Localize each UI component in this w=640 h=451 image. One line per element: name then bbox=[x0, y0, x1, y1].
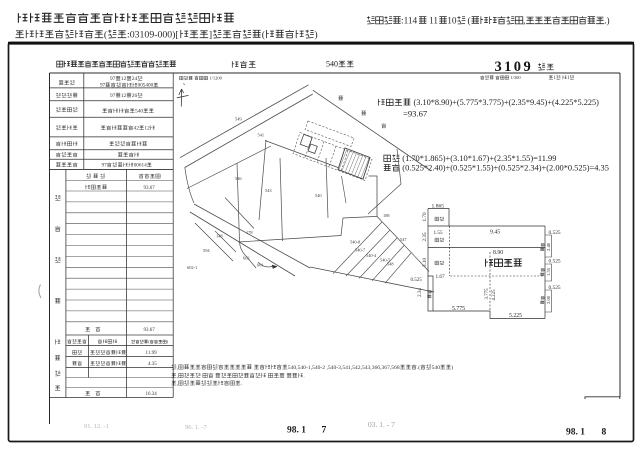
svg-text:03. 1. - 7: 03. 1. - 7 bbox=[368, 420, 395, 429]
svg-text:543: 543 bbox=[265, 188, 272, 193]
svg-text:,: , bbox=[177, 381, 179, 387]
svg-text:178: 178 bbox=[246, 230, 253, 235]
svg-text:546: 546 bbox=[235, 176, 242, 181]
svg-text:(: ( bbox=[465, 15, 470, 26]
svg-text:4.225: 4.225 bbox=[492, 289, 497, 301]
svg-text:1: 1 bbox=[567, 76, 570, 81]
svg-text:12: 12 bbox=[121, 93, 127, 99]
svg-text:1.67: 1.67 bbox=[436, 274, 445, 280]
svg-text:540-4: 540-4 bbox=[366, 253, 377, 258]
svg-text:4.35: 4.35 bbox=[148, 362, 157, 367]
svg-text:96. 1. -7: 96. 1. -7 bbox=[185, 424, 207, 431]
svg-text:93.67: 93.67 bbox=[144, 328, 156, 333]
svg-text:98. 1: 98. 1 bbox=[287, 426, 306, 436]
svg-text:5.775: 5.775 bbox=[452, 306, 465, 312]
svg-text:602-1: 602-1 bbox=[187, 265, 197, 270]
svg-text:(0.525*2.40)+(0.525*1.55)+(0.5: (0.525*2.40)+(0.525*1.55)+(0.525*2.34)+(… bbox=[400, 164, 609, 173]
svg-text:005400: 005400 bbox=[138, 83, 154, 89]
svg-text:540: 540 bbox=[315, 193, 322, 198]
svg-text:188: 188 bbox=[383, 213, 390, 218]
svg-text:2.00: 2.00 bbox=[546, 295, 551, 304]
svg-text:0.525: 0.525 bbox=[549, 259, 561, 265]
svg-text:97: 97 bbox=[110, 76, 116, 82]
svg-text:24: 24 bbox=[132, 76, 138, 82]
svg-text:540,540-1,540-2 ,540-3,541,542: 540,540-1,540-2 ,540-3,541,542,543,366,3… bbox=[288, 365, 400, 371]
svg-text:547: 547 bbox=[400, 237, 407, 242]
svg-text:9.45: 9.45 bbox=[490, 230, 500, 236]
svg-text:(: ( bbox=[148, 339, 150, 344]
svg-text:91. 12. -1: 91. 12. -1 bbox=[84, 423, 109, 430]
svg-text:3.10: 3.10 bbox=[422, 258, 428, 267]
svg-text:,: , bbox=[177, 373, 179, 379]
svg-text:2.35: 2.35 bbox=[422, 232, 428, 241]
svg-text:97: 97 bbox=[110, 93, 116, 99]
svg-text:602: 602 bbox=[243, 256, 250, 261]
svg-text:(3.10*8.90)+(5.775*3.775)+(2.3: (3.10*8.90)+(5.775*3.775)+(2.35*9.45)+(4… bbox=[411, 98, 599, 107]
svg-text:0.525: 0.525 bbox=[549, 285, 561, 291]
svg-text:148: 148 bbox=[216, 234, 223, 239]
svg-text:]: ] bbox=[209, 29, 212, 40]
svg-text:97: 97 bbox=[102, 163, 108, 169]
svg-text:1: 1 bbox=[554, 76, 557, 81]
svg-text:594: 594 bbox=[203, 248, 210, 253]
svg-text:26: 26 bbox=[132, 93, 138, 99]
svg-text:=93.67: =93.67 bbox=[403, 109, 428, 119]
svg-text:.: . bbox=[241, 381, 243, 387]
svg-text:1/1200: 1/1200 bbox=[208, 76, 222, 81]
svg-text:3.775: 3.775 bbox=[485, 288, 490, 300]
svg-text:601: 601 bbox=[257, 263, 264, 268]
svg-text:.(: .( bbox=[417, 364, 420, 371]
svg-text:548: 548 bbox=[387, 262, 394, 267]
svg-text:541: 541 bbox=[258, 133, 265, 138]
svg-text:540-8: 540-8 bbox=[350, 240, 361, 245]
svg-text:549: 549 bbox=[235, 117, 242, 122]
svg-text:11: 11 bbox=[427, 16, 439, 26]
svg-text:10: 10 bbox=[447, 16, 457, 26]
svg-text:1.55: 1.55 bbox=[546, 267, 551, 276]
svg-text:42: 42 bbox=[134, 126, 140, 132]
svg-text:,: , bbox=[523, 16, 525, 26]
svg-text:(: ( bbox=[104, 29, 107, 40]
svg-text:8: 8 bbox=[602, 428, 607, 438]
svg-text:16.34: 16.34 bbox=[146, 392, 158, 397]
svg-text:1.70: 1.70 bbox=[422, 212, 428, 221]
svg-text:(1.70*1.865)+(3.10*1.67)+(2.35: (1.70*1.865)+(3.10*1.67)+(2.35*1.55)=11.… bbox=[400, 154, 556, 163]
svg-text:2.40: 2.40 bbox=[546, 242, 551, 251]
svg-text::03109-000)[: :03109-000)[ bbox=[127, 29, 179, 40]
svg-text:): ) bbox=[167, 339, 169, 344]
svg-text:11.99: 11.99 bbox=[146, 351, 158, 356]
svg-text:): ) bbox=[314, 29, 317, 40]
svg-text:93.67: 93.67 bbox=[144, 186, 156, 191]
svg-text:00614: 00614 bbox=[134, 163, 147, 169]
svg-text:540-7: 540-7 bbox=[355, 248, 366, 253]
svg-text:.): .) bbox=[604, 15, 609, 26]
svg-text:98. 1: 98. 1 bbox=[566, 428, 585, 438]
svg-text:5.225: 5.225 bbox=[509, 313, 522, 319]
svg-text:540: 540 bbox=[432, 365, 441, 371]
svg-text:540: 540 bbox=[135, 109, 143, 115]
svg-text:0.525: 0.525 bbox=[411, 278, 423, 283]
svg-text:1/300: 1/300 bbox=[509, 75, 521, 80]
svg-text:12: 12 bbox=[144, 126, 150, 132]
svg-text:1.865: 1.865 bbox=[432, 204, 445, 210]
svg-text:): ) bbox=[451, 364, 453, 371]
svg-text:8.90: 8.90 bbox=[493, 250, 503, 256]
svg-text:7: 7 bbox=[322, 426, 327, 436]
svg-text::114: :114 bbox=[401, 16, 418, 26]
svg-text:2.34: 2.34 bbox=[418, 288, 423, 297]
svg-text:97: 97 bbox=[100, 83, 106, 89]
svg-text:(: ( bbox=[262, 29, 265, 40]
svg-text:0.525: 0.525 bbox=[549, 230, 561, 236]
svg-text:.: . bbox=[303, 373, 305, 379]
svg-text:,: , bbox=[177, 365, 179, 371]
svg-text:1.55: 1.55 bbox=[434, 230, 443, 236]
svg-text:12: 12 bbox=[121, 76, 127, 82]
svg-text:540: 540 bbox=[326, 60, 338, 69]
